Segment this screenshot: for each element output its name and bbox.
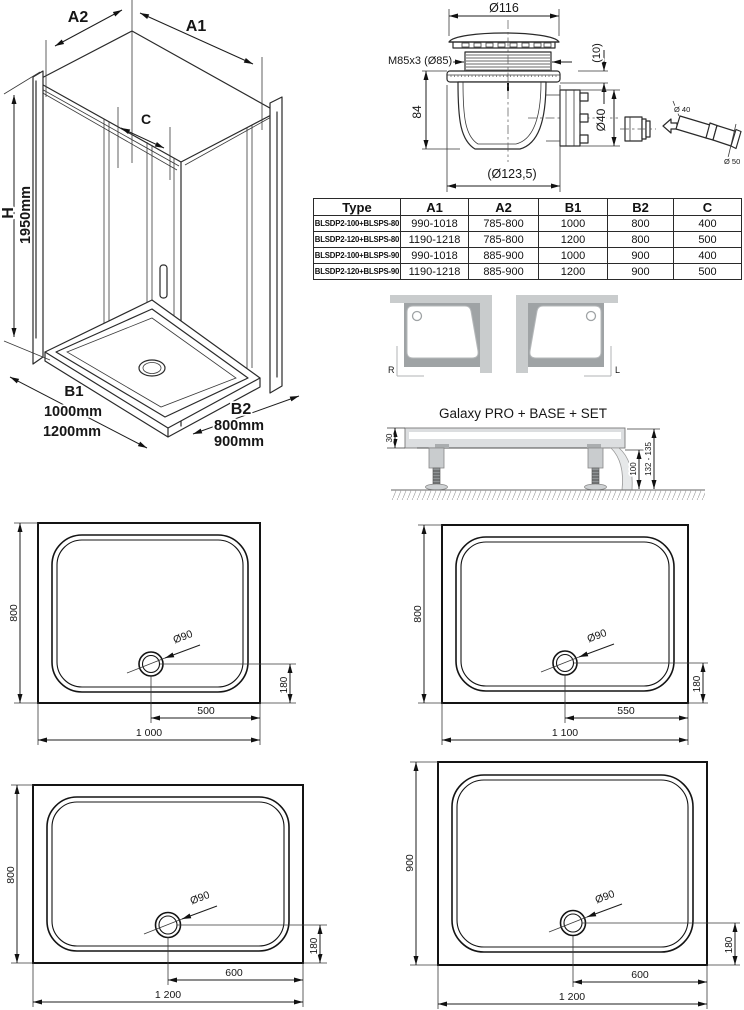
table-row: BLSDP2-100+BLSPS-90 990-1018 885-900 100…	[314, 248, 742, 264]
drain-cap-dome	[449, 33, 559, 42]
col-header-type: Type	[314, 199, 401, 216]
cell-b2: 900	[608, 264, 674, 280]
wall-right	[480, 295, 492, 373]
door-handle	[160, 265, 167, 298]
dim-b1-value-2: 1200mm	[43, 424, 101, 440]
tray-depth-label: 800	[412, 605, 424, 623]
enclosure-structure	[33, 31, 282, 437]
outlet-diameter-label: Ø40	[594, 108, 608, 131]
drain-from-edge-label: 600	[225, 967, 243, 979]
drain-from-edge-label: 550	[617, 705, 635, 717]
drain-offset-label: 180	[279, 676, 290, 693]
tray-outline	[438, 762, 707, 965]
cell-b2: 800	[608, 232, 674, 248]
tray-outline	[33, 785, 303, 963]
body-height-label: 84	[410, 105, 424, 119]
tray-depth-label: 800	[5, 866, 17, 884]
orientation-right-label: R	[388, 365, 395, 375]
spec-table-header-row: Type A1 A2 B1 B2 C	[314, 199, 742, 216]
orientation-left-label: L	[615, 365, 620, 375]
tray-width-label: 1 200	[155, 989, 181, 1001]
wall-left	[516, 295, 528, 373]
direction-arrow-icon	[663, 119, 677, 133]
cell-b1: 1200	[539, 264, 608, 280]
total-height-label: 132 - 135	[644, 442, 653, 476]
outlet-pipe	[676, 116, 710, 138]
technical-drawing-sheet: { "enclosure": { "width_back_label": "A2…	[0, 0, 744, 1010]
tray-width-label: 1 000	[136, 727, 162, 739]
drain-outlet-collar	[560, 90, 580, 146]
dim-height-value: 1950mm	[18, 186, 34, 244]
drain-mark	[413, 312, 422, 321]
cap-diameter-label: Ø116	[489, 1, 519, 15]
cell-b2: 900	[608, 248, 674, 264]
thread-label: M85x3 (Ø85)	[388, 55, 452, 67]
cell-a1: 990-1018	[401, 248, 469, 264]
drain-assembly-drawing: Ø116 M85x3 (Ø85) (10) 84 Ø40 (Ø123,5) Ø …	[380, 0, 744, 200]
drain-body	[458, 82, 546, 149]
tray-depth-label: 900	[404, 854, 416, 872]
cell-type: BLSDP2-100+BLSPS-90	[314, 248, 401, 264]
drain-offset-label: 180	[309, 937, 320, 954]
drain-mark	[587, 312, 596, 321]
wall-top	[516, 295, 618, 303]
cell-a2: 785-800	[469, 232, 539, 248]
cell-b1: 1000	[539, 216, 608, 232]
cell-c: 500	[674, 264, 742, 280]
cell-c: 400	[674, 248, 742, 264]
cell-c: 500	[674, 232, 742, 248]
tray-drawing-1100x800: Ø90 800 180 550 1 100	[412, 515, 712, 750]
drain-structure	[447, 20, 618, 162]
cell-type: BLSDP2-100+BLSPS-80	[314, 216, 401, 232]
cell-a2: 785-800	[469, 216, 539, 232]
dim-c-label: C	[141, 111, 151, 127]
cell-type: BLSDP2-120+BLSPS-90	[314, 264, 401, 280]
tray-orientation-left: L	[514, 292, 624, 387]
cell-a1: 990-1018	[401, 216, 469, 232]
drain-offset-label: 180	[724, 936, 735, 953]
dim-a2-label: A2	[68, 9, 89, 26]
base-set-drawing: Galaxy PRO + BASE + SET 30 100 13	[383, 402, 713, 507]
cell-a1: 1190-1218	[401, 264, 469, 280]
tray-drawing-1000x800: Ø90 800 180 500 1 000	[8, 515, 308, 750]
foot-right	[585, 448, 607, 490]
dim-h-label: H	[0, 207, 17, 219]
table-row: BLSDP2-100+BLSPS-80 990-1018 785-800 100…	[314, 216, 742, 232]
col-header-a1: A1	[401, 199, 469, 216]
table-row: BLSDP2-120+BLSPS-90 1190-1218 885-900 12…	[314, 264, 742, 280]
tray-drawing-1200x800: Ø90 800 180 600 1 200	[5, 765, 340, 1010]
cell-c: 400	[674, 216, 742, 232]
dim-b2-label: B2	[231, 401, 252, 418]
pipe-outlet-diameter-label: Ø 50	[724, 157, 740, 166]
col-header-b1: B1	[539, 199, 608, 216]
dim-b2-value-1: 800mm	[214, 418, 264, 434]
drain-from-edge-label: 500	[197, 705, 215, 717]
foot-left	[426, 448, 448, 490]
cell-a1: 1190-1218	[401, 232, 469, 248]
shower-enclosure-drawing: A2 A1 C H 1950mm B1 1000mm 1200mm B2 800…	[0, 0, 310, 470]
cell-b1: 1200	[539, 232, 608, 248]
tray-width-label: 1 100	[552, 727, 578, 739]
cell-a2: 885-900	[469, 264, 539, 280]
pipe-inlet-diameter-label: Ø 40	[674, 105, 690, 114]
cell-type: BLSDP2-120+BLSPS-80	[314, 232, 401, 248]
left-wall-profile	[33, 71, 43, 364]
col-header-c: C	[674, 199, 742, 216]
cell-a2: 885-900	[469, 248, 539, 264]
dim-a1-label: A1	[186, 18, 207, 35]
drain-from-edge-label: 600	[631, 969, 649, 981]
wall-top	[390, 295, 492, 303]
table-row: BLSDP2-120+BLSPS-80 1190-1218 785-800 12…	[314, 232, 742, 248]
flange-diameter-label: (Ø123,5)	[487, 167, 536, 181]
spec-table: Type A1 A2 B1 B2 C BLSDP2-100+BLSPS-80 9…	[313, 198, 742, 280]
leg-height-label: 100	[629, 462, 638, 476]
base-structure	[391, 428, 705, 500]
right-wall-profile	[270, 97, 282, 393]
tray-width-label: 1 200	[559, 991, 585, 1003]
rim-height-label: 30	[385, 433, 394, 442]
tray-drawing-1200x900: Ø90 900 180 600 1 200	[402, 753, 742, 1010]
floor-hatch	[391, 490, 705, 500]
tray-orientation-right: R	[386, 292, 496, 387]
cell-b2: 800	[608, 216, 674, 232]
dim-b2-value-2: 900mm	[214, 434, 264, 450]
col-header-a2: A2	[469, 199, 539, 216]
dim-b1-label: B1	[64, 383, 83, 400]
drain-offset-label: 180	[692, 675, 703, 692]
col-header-b2: B2	[608, 199, 674, 216]
cell-b1: 1000	[539, 248, 608, 264]
tray-depth-label: 800	[8, 604, 20, 622]
collar-height-label: (10)	[591, 43, 603, 63]
dim-b1-value-1: 1000mm	[44, 404, 102, 420]
base-set-title: Galaxy PRO + BASE + SET	[439, 406, 607, 421]
